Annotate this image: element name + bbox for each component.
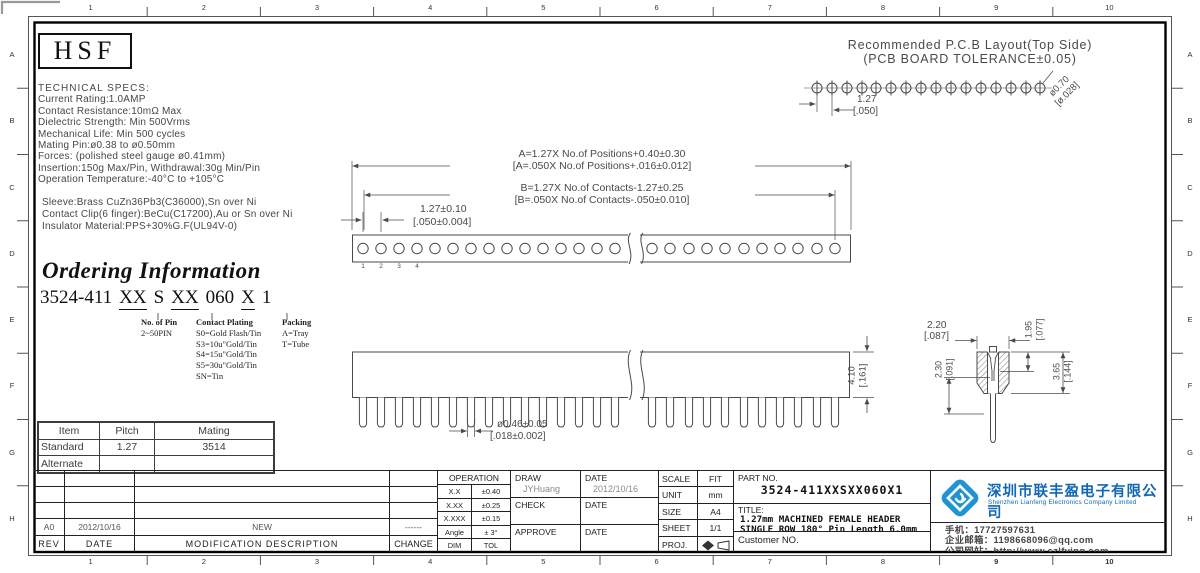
- spec-line: Forces: (polished steel gauge ø0.41mm): [38, 151, 260, 162]
- company-contact: 手机：17727597631 企业邮箱：1198668096@qq.com 公司…: [931, 523, 1166, 552]
- grid-row-label: D: [1183, 249, 1197, 258]
- dim-pitch-mm: 1.27±0.10: [420, 203, 467, 215]
- ordering-col-pins: No. of Pin 2~50PIN: [141, 317, 177, 339]
- rev-change: ------: [390, 519, 437, 536]
- draw-value: JYHuang: [511, 483, 580, 494]
- grid-row-label: F: [1183, 381, 1197, 390]
- customer-cell: Customer NO.: [734, 532, 930, 552]
- pin-number: 4: [414, 263, 421, 270]
- grid-col-label: 9: [986, 557, 1006, 566]
- dim-tail-in: [.018±0.002]: [490, 431, 546, 442]
- drawing-geometry: [341, 71, 1070, 443]
- detail-d3-in: [.144]: [1062, 351, 1073, 393]
- tol-label: X.XXX: [438, 512, 472, 526]
- detail-d1-in: [.077]: [1034, 309, 1045, 351]
- header-cell: Mating: [155, 422, 275, 439]
- table-row: Item Pitch Mating: [38, 422, 274, 439]
- tol-value: ±0.40: [472, 485, 510, 499]
- title-line2: SINGLE ROW 180° Pin Length 6.0mm: [734, 525, 930, 533]
- unit-value: mm: [698, 487, 733, 503]
- hsf-logo: HSF: [38, 33, 132, 69]
- dim-a-mm: A=1.27X No.of Positions+0.40±0.30: [437, 148, 767, 160]
- detail-dim-3: 3.65 [.144]: [1052, 351, 1073, 393]
- empty-cell: [65, 471, 135, 487]
- empty-cell: [390, 471, 437, 487]
- dim-b-mm: B=1.27X No.of Contacts-1.27±0.25: [437, 182, 767, 194]
- empty-cell: [135, 471, 390, 487]
- grid-row-label: G: [1183, 448, 1197, 457]
- approve-label: APPROVE: [511, 525, 580, 537]
- rev-description: NEW: [135, 519, 390, 536]
- grid-col-label: 5: [533, 557, 553, 566]
- part-block: PART NO. 3524-411XXSXX060X1 TITLE: 1.27m…: [733, 470, 930, 552]
- spec-line: Insulator Material:PPS+30%G.F(UL94V-0): [42, 221, 293, 233]
- empty-cell: [34, 471, 65, 487]
- col-title: No. of Pin: [141, 317, 177, 328]
- empty-cell: [390, 503, 437, 519]
- datasheet-page: 1 2 3 4 5 6 7 8 9 10 1 2 3 4 5 6 7 8 9 1…: [0, 0, 1200, 573]
- tolerance-table: OPERATION X.X ±0.40 X.XX ±0.25 X.XXX ±0.…: [437, 470, 510, 552]
- technical-specs: TECHNICAL SPECS: Current Rating:1.0AMP C…: [38, 83, 260, 186]
- approval-block: DRAW JYHuang DATE 2012/10/16 CHECK DATE …: [510, 470, 658, 552]
- revision-table: A0 2012/10/16 NEW ------ REV DATE MODIFI…: [34, 470, 437, 552]
- unit-label: UNIT: [659, 487, 698, 503]
- grid-col-label: 6: [647, 3, 667, 12]
- sheet-value: 1/1: [698, 520, 733, 536]
- detail-d1-mm: 1.95: [1024, 309, 1035, 351]
- cell: 1.27: [100, 439, 155, 456]
- part-no-cell: PART NO. 3524-411XXSXX060X1: [734, 471, 930, 504]
- pcb-tolerance: (PCB BOARD TOLERANCE±0.05): [795, 52, 1145, 66]
- spec-line: Mating Pin:ø0.38 to ø0.50mm: [38, 140, 260, 151]
- spec-line: Contact Clip(6 finger):BeCu(C17200),Au o…: [42, 209, 293, 221]
- material-specs: Sleeve:Brass CuZn36Pb3(C36000),Sn over N…: [42, 197, 293, 233]
- dim-height: 4.10 [.161]: [848, 353, 871, 399]
- tol-label: X.XX: [438, 499, 472, 513]
- grid-row-label: B: [5, 116, 19, 125]
- part-no-label: PART NO.: [734, 471, 930, 483]
- date-header: DATE: [65, 536, 135, 552]
- cell: Standard: [38, 439, 100, 456]
- tol-label: DIM: [438, 539, 472, 552]
- table-row: Standard 1.27 3514: [38, 439, 274, 456]
- col-title: Packing: [282, 317, 311, 328]
- col-item: A=Tray: [282, 328, 311, 339]
- pn-prefix: 3524-411: [40, 287, 112, 308]
- grid-col-label: 9: [986, 3, 1006, 12]
- dim-pitch-in: [.050±0.004]: [413, 216, 471, 228]
- tol-value: ± 3°: [472, 526, 510, 540]
- grid-row-label: A: [1183, 50, 1197, 59]
- pn-plating: XX: [171, 287, 198, 310]
- grid-col-label: 2: [194, 557, 214, 566]
- grid-col-label: 5: [533, 3, 553, 12]
- empty-cell: [135, 487, 390, 503]
- company-email: 企业邮箱：1198668096@qq.com: [945, 535, 1166, 545]
- empty-cell: [34, 487, 65, 503]
- grid-row-label: D: [5, 249, 19, 258]
- check-cell: CHECK: [511, 498, 581, 525]
- cell: 3514: [155, 439, 275, 456]
- mating-table: Item Pitch Mating Standard 1.27 3514 Alt…: [37, 421, 275, 474]
- grid-col-label: 10: [1099, 557, 1119, 566]
- height-mm: 4.10: [848, 353, 859, 399]
- detail-width-mm: 2.20: [927, 320, 946, 331]
- grid-col-label: 3: [307, 557, 327, 566]
- projection-symbol-icon: [701, 539, 731, 552]
- grid-row-label: F: [5, 381, 19, 390]
- scale-value: FIT: [698, 471, 733, 487]
- pin-number: 3: [396, 263, 403, 270]
- ordering-part-number: 3524-411XXSXX060X1: [40, 287, 271, 309]
- col-item: SN=Tin: [196, 371, 261, 382]
- col-item: S4=15u"Gold/Tin: [196, 349, 261, 360]
- col-item: S5=30u"Gold/Tin: [196, 360, 261, 371]
- pn-1: 1: [262, 287, 272, 308]
- detail-d2-in: [.091]: [944, 349, 955, 391]
- empty-cell: [135, 503, 390, 519]
- size-value: A4: [698, 504, 733, 520]
- pcb-pitch-mm: 1.27: [857, 94, 876, 105]
- spec-line: Dielectric Strength: Min 500Vrms: [38, 117, 260, 128]
- spec-line: Mechanical Life: Min 500 cycles: [38, 129, 260, 140]
- rev-value: A0: [34, 519, 65, 536]
- pn-s: S: [154, 287, 165, 308]
- draw-date-cell: DATE 2012/10/16: [581, 471, 658, 498]
- grid-row-label: E: [5, 315, 19, 324]
- projection-label: PROJ.: [659, 537, 698, 552]
- grid-row-label: H: [5, 514, 19, 523]
- col-item: 2~50PIN: [141, 328, 177, 339]
- detail-dim-1: 1.95 [.077]: [1024, 309, 1045, 351]
- tol-value: ±0.25: [472, 499, 510, 513]
- grid-row-label: E: [1183, 315, 1197, 324]
- header-cell: Pitch: [100, 422, 155, 439]
- customer-label: Customer NO.: [734, 532, 930, 546]
- projection-symbol-cell: [698, 537, 733, 552]
- grid-col-label: 1: [81, 557, 101, 566]
- grid-col-label: 4: [420, 3, 440, 12]
- date-label: DATE: [581, 471, 658, 483]
- draw-label: DRAW: [511, 471, 580, 483]
- col-title: Contact Plating: [196, 317, 261, 328]
- drawing-info-block: SCALE FIT UNIT mm SIZE A4 SHEET 1/1 PROJ…: [658, 470, 733, 552]
- spec-line: Contact Resistance:10mΩ Max: [38, 106, 260, 117]
- col-item: S0=Gold Flash/Tin: [196, 328, 261, 339]
- date-label: DATE: [581, 498, 658, 510]
- company-logo-icon: [937, 475, 983, 519]
- spec-line: Operation Temperature:-40°C to +105°C: [38, 174, 260, 185]
- grid-row-label: A: [5, 50, 19, 59]
- detail-d3-mm: 3.65: [1052, 351, 1063, 393]
- grid-col-label: 7: [760, 3, 780, 12]
- grid-row-label: C: [1183, 183, 1197, 192]
- grid-col-label: 10: [1099, 3, 1119, 12]
- grid-row-label: G: [5, 448, 19, 457]
- change-header: CHANGE: [390, 536, 437, 552]
- spec-line: Insertion:150g Max/Pin, Withdrawal:30g M…: [38, 163, 260, 174]
- check-date-cell: DATE: [581, 498, 658, 525]
- grid-row-label: H: [1183, 514, 1197, 523]
- empty-cell: [390, 487, 437, 503]
- detail-dim-2: 2.30 [.091]: [934, 349, 955, 391]
- company-block: 深圳市联丰盈电子有限公司 Shenzhen Lianfeng Electroni…: [930, 470, 1166, 552]
- ordering-heading: Ordering Information: [42, 258, 261, 284]
- dim-tail-mm: ø0.46±0.05: [497, 419, 548, 430]
- tol-label: X.X: [438, 485, 472, 499]
- approve-cell: APPROVE: [511, 525, 581, 552]
- height-in: [.161]: [858, 353, 869, 399]
- pin-number: 2: [378, 263, 385, 270]
- ordering-col-packing: Packing A=Tray T=Tube: [282, 317, 311, 349]
- detail-d2-mm: 2.30: [934, 349, 945, 391]
- grid-col-label: 2: [194, 3, 214, 12]
- sheet-label: SHEET: [659, 520, 698, 536]
- draw-cell: DRAW JYHuang: [511, 471, 581, 498]
- grid-col-label: 8: [873, 557, 893, 566]
- pn-pin-count: XX: [119, 287, 146, 310]
- pcb-title: Recommended P.C.B Layout(Top Side): [795, 38, 1145, 52]
- rev-header: REV: [34, 536, 65, 552]
- empty-cell: [65, 503, 135, 519]
- grid-row-label: C: [5, 183, 19, 192]
- empty-cell: [65, 487, 135, 503]
- grid-col-label: 6: [647, 557, 667, 566]
- spec-line: Sleeve:Brass CuZn36Pb3(C36000),Sn over N…: [42, 197, 293, 209]
- specs-title: TECHNICAL SPECS:: [38, 83, 260, 94]
- pn-packing: X: [241, 287, 255, 310]
- tol-value: ±0.15: [472, 512, 510, 526]
- date-value: 2012/10/16: [581, 483, 658, 494]
- size-label: SIZE: [659, 504, 698, 520]
- pcb-pitch-in: [.050]: [853, 106, 878, 117]
- approve-date-cell: DATE: [581, 525, 658, 552]
- check-label: CHECK: [511, 498, 580, 510]
- ordering-col-plating: Contact Plating S0=Gold Flash/Tin S3=10u…: [196, 317, 261, 382]
- pin-number: 1: [360, 263, 367, 270]
- tol-label: Angle: [438, 526, 472, 540]
- col-item: S3=10u"Gold/Tin: [196, 339, 261, 350]
- description-header: MODIFICATION DESCRIPTION: [135, 536, 390, 552]
- date-label: DATE: [581, 525, 658, 537]
- rev-date: 2012/10/16: [65, 519, 135, 536]
- title-cell: TITLE: 1.27mm MACHINED FEMALE HEADER SIN…: [734, 504, 930, 532]
- grid-col-label: 4: [420, 557, 440, 566]
- grid-col-label: 8: [873, 3, 893, 12]
- grid-col-label: 7: [760, 557, 780, 566]
- dim-b-in: [B=.050X No.of Contacts-.050±0.010]: [437, 194, 767, 206]
- scale-label: SCALE: [659, 471, 698, 487]
- pn-060: 060: [206, 287, 235, 308]
- grid-row-label: B: [1183, 116, 1197, 125]
- tolerance-header: OPERATION: [438, 471, 510, 485]
- grid-col-label: 3: [307, 3, 327, 12]
- col-item: T=Tube: [282, 339, 311, 350]
- company-phone: 手机：17727597631: [945, 525, 1166, 535]
- tol-value: TOL: [472, 539, 510, 552]
- company-website: 公司网站：http://www.szlfying.com: [945, 546, 1166, 552]
- header-cell: Item: [38, 422, 100, 439]
- spec-line: Current Rating:1.0AMP: [38, 94, 260, 105]
- detail-width-in: [.087]: [924, 331, 949, 342]
- part-no-value: 3524-411XXSXX060X1: [734, 483, 930, 497]
- empty-cell: [34, 503, 65, 519]
- pcb-layout-heading: Recommended P.C.B Layout(Top Side) (PCB …: [795, 38, 1145, 66]
- company-name-en: Shenzhen Lianfeng Electronics Company Li…: [988, 499, 1137, 506]
- company-header: 深圳市联丰盈电子有限公司 Shenzhen Lianfeng Electroni…: [931, 471, 1166, 523]
- dim-a-in: [A=.050X No.of Positions+.016±0.012]: [437, 160, 767, 172]
- grid-col-label: 1: [81, 3, 101, 12]
